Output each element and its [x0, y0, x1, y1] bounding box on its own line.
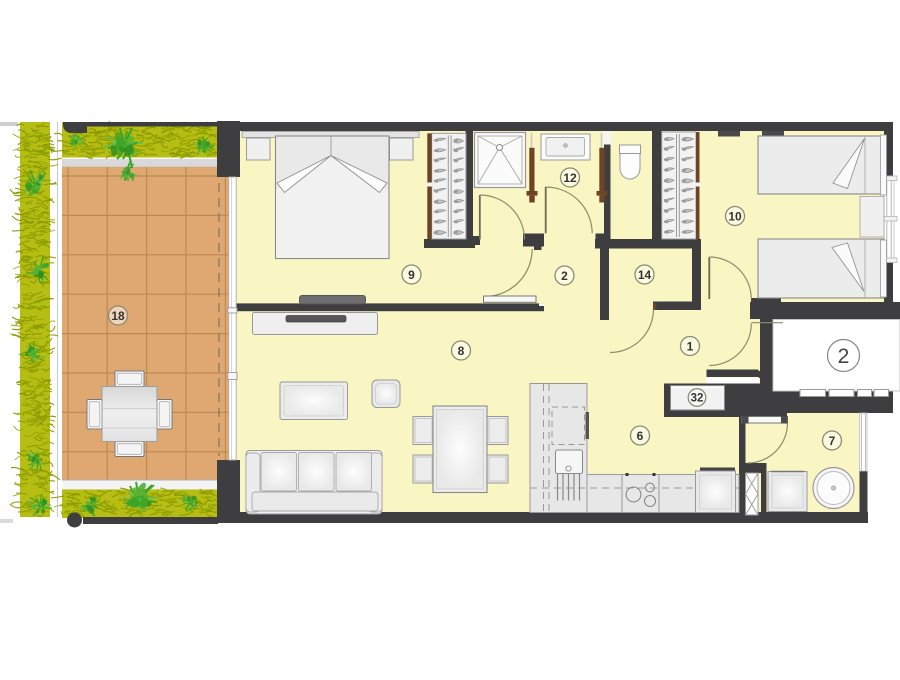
svg-text:14: 14 — [638, 268, 652, 282]
svg-text:6: 6 — [637, 429, 644, 443]
svg-text:7: 7 — [829, 434, 836, 448]
svg-text:18: 18 — [111, 309, 125, 323]
svg-text:12: 12 — [563, 171, 577, 185]
svg-text:32: 32 — [691, 393, 704, 405]
svg-text:9: 9 — [408, 268, 415, 282]
svg-text:1: 1 — [687, 339, 694, 353]
svg-text:8: 8 — [458, 344, 465, 358]
svg-text:2: 2 — [838, 345, 850, 368]
svg-text:2: 2 — [561, 269, 568, 283]
svg-text:10: 10 — [728, 209, 742, 223]
